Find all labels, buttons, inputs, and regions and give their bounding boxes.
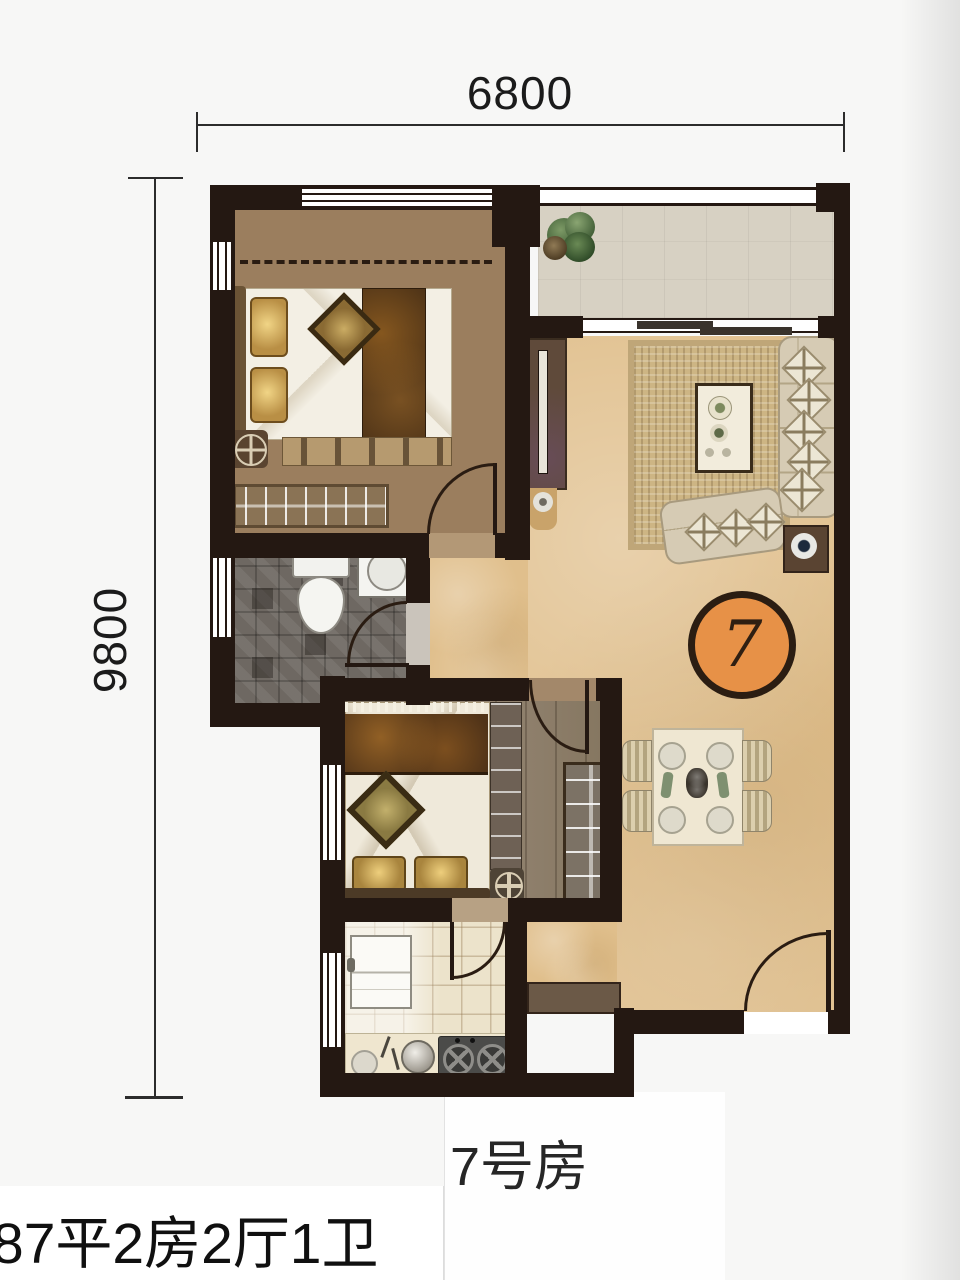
- dimension-tick: [125, 1096, 183, 1099]
- place-setting: [658, 742, 686, 770]
- wall-bathroom-right-upper: [406, 533, 430, 603]
- stove-knob: [470, 1038, 475, 1043]
- bedroom1-pillow: [250, 297, 288, 357]
- balcony-railing: [540, 187, 818, 206]
- refrigerator-handle: [347, 958, 355, 972]
- bedroom2-lamp-icon: [495, 872, 523, 900]
- floor-plan: 7 6800 9800 7号房 87平2房2厅1卫: [0, 0, 960, 1280]
- plant-icon: [543, 210, 601, 266]
- dining-chair: [622, 790, 652, 832]
- dimension-line-top: [197, 124, 845, 126]
- centerpiece: [686, 768, 708, 798]
- page-edge-shade: [900, 0, 960, 1280]
- kitchen-sink: [401, 1040, 435, 1074]
- bedroom1-window: [302, 187, 507, 208]
- shoe-cabinet: [527, 982, 621, 1014]
- unit-number-badge: 7: [688, 591, 796, 699]
- coffee-table-decor: [722, 448, 731, 457]
- wall-bedroom1-bottom: [210, 533, 429, 558]
- bedroom1-lamp-icon: [235, 434, 267, 466]
- bedroom1-bench: [282, 437, 452, 466]
- dining-chair: [742, 790, 772, 832]
- coffee-table-decor: [705, 448, 714, 457]
- dimension-tick: [196, 112, 198, 152]
- balcony-door-frame-left: [527, 316, 583, 338]
- dining-chair: [742, 740, 772, 782]
- hallway-floor: [428, 556, 528, 682]
- bathroom-door-opening: [406, 603, 430, 665]
- balcony-sliding-panel: [700, 327, 792, 335]
- kitchen-door-opening: [452, 898, 508, 922]
- wall-kitchen-bottom: [320, 1073, 634, 1097]
- coffee-table-decor: [708, 396, 732, 420]
- bedroom1-blanket: [362, 288, 426, 438]
- tv: [538, 350, 548, 474]
- unit-name-caption: 7号房: [450, 1122, 670, 1201]
- dimension-line-left: [154, 178, 156, 1098]
- place-setting: [706, 742, 734, 770]
- bedroom2-pillow: [414, 856, 468, 892]
- dimension-label-left: 9800: [83, 540, 137, 740]
- wall-corner-column: [492, 185, 540, 247]
- wall-bedroom2-bottom-right: [508, 898, 622, 922]
- stove-burner-icon: [443, 1044, 474, 1075]
- bedroom1-side-window: [211, 242, 233, 290]
- bedroom2-dresser: [490, 702, 522, 870]
- wall-bedroom2-right: [600, 678, 622, 920]
- dimension-tick: [128, 177, 183, 179]
- wall-bedroom1-living: [505, 245, 530, 560]
- side-table-bowl: [791, 533, 817, 559]
- bedroom2-blanket: [345, 714, 488, 775]
- bathroom-window: [211, 553, 233, 637]
- bathroom-tile-dark: [305, 634, 326, 655]
- place-setting: [658, 806, 686, 834]
- dining-chair: [622, 740, 652, 782]
- wall-kitchen-right: [505, 922, 527, 1075]
- refrigerator: [350, 935, 412, 1009]
- entrance-door-opening: [744, 1012, 828, 1034]
- bathroom-tile-dark: [252, 588, 273, 609]
- wall-bedroom1-bottom-jamb: [495, 533, 510, 558]
- entry-floor: [527, 922, 617, 982]
- unit-number: 7: [722, 613, 763, 677]
- bedroom2-window: [321, 765, 343, 860]
- bathroom-tile-dark: [252, 657, 273, 678]
- dimension-label-top: 6800: [380, 66, 660, 120]
- wall-bedroom2-bottom-left: [320, 898, 452, 922]
- wall-balcony-post: [816, 183, 850, 212]
- wall-living-bottom-left: [622, 1010, 744, 1034]
- kitchen-window: [321, 953, 343, 1047]
- dimension-tick: [843, 112, 845, 152]
- stove-knob: [455, 1038, 460, 1043]
- bedroom2-pillow: [352, 856, 406, 892]
- wall-bedroom2-top: [323, 678, 529, 701]
- wall-living-bottom-right: [828, 1010, 850, 1034]
- bedroom1-pillow: [250, 367, 288, 423]
- bedroom1-closet-dashed-line: [240, 260, 492, 264]
- bedroom1-wardrobe: [233, 484, 389, 528]
- bedroom1-door-opening: [429, 533, 495, 558]
- unit-spec-caption: 87平2房2厅1卫: [0, 1198, 452, 1280]
- balcony-door-frame-right: [818, 316, 836, 338]
- place-setting: [706, 806, 734, 834]
- coffee-table-decor: [710, 424, 728, 442]
- stove-burner-icon: [477, 1044, 508, 1075]
- wall-right: [834, 210, 850, 1034]
- speaker-icon: [533, 492, 553, 512]
